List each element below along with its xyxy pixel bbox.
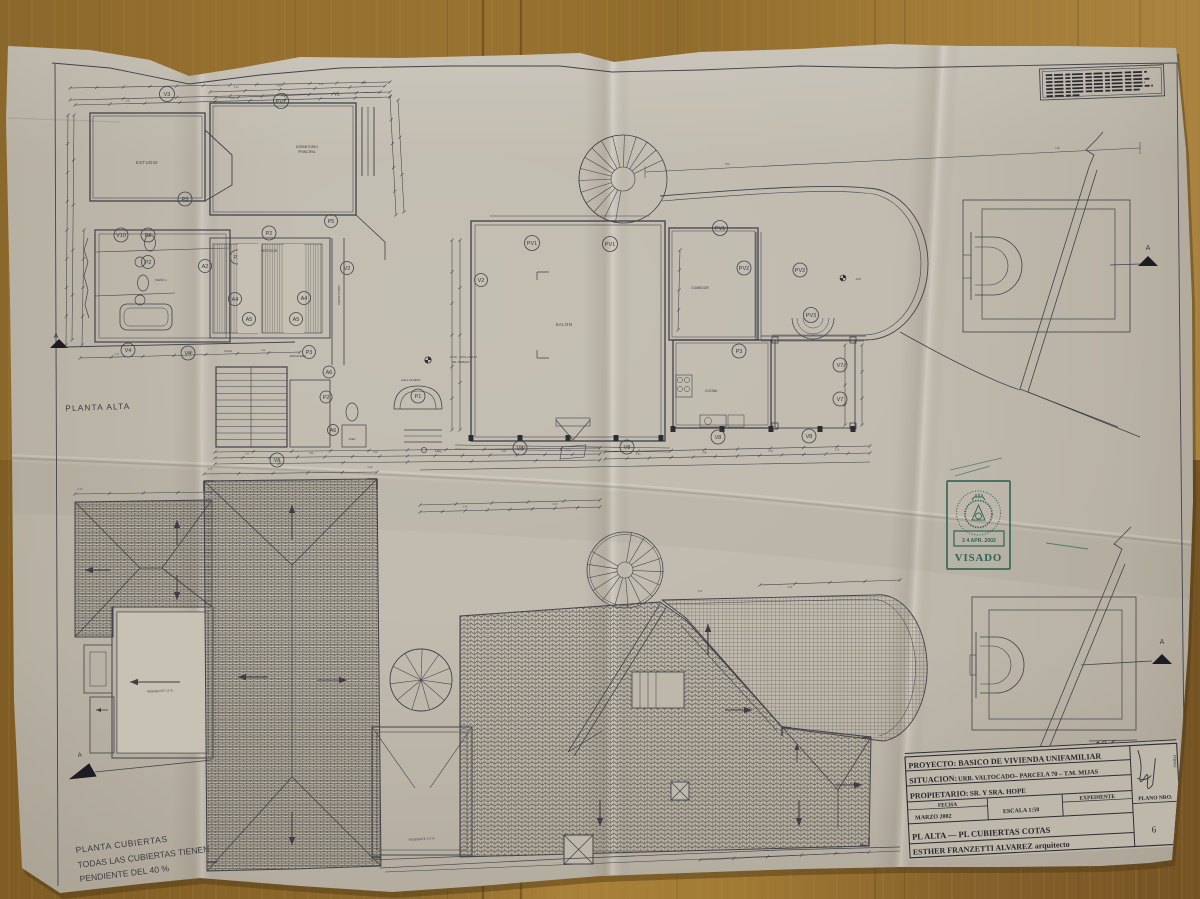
svg-text:A6: A6 xyxy=(326,370,333,376)
svg-text:BAÑO 1: BAÑO 1 xyxy=(155,277,166,282)
svg-text:A: A xyxy=(1160,639,1165,646)
svg-text:4.10: 4.10 xyxy=(188,351,193,354)
svg-text:A5: A5 xyxy=(293,317,300,323)
svg-text:V7: V7 xyxy=(837,363,844,369)
svg-text:2.92: 2.92 xyxy=(788,586,793,589)
svg-text:PV2: PV2 xyxy=(276,99,286,105)
svg-text:0.40: 0.40 xyxy=(78,488,83,491)
svg-text:PV3: PV3 xyxy=(806,313,816,319)
svg-text:±0.00 · COTA +378.00: ±0.00 · COTA +378.00 xyxy=(450,355,477,359)
svg-text:COMEDOR: COMEDOR xyxy=(691,286,709,290)
svg-text:FECHA: FECHA xyxy=(938,802,958,809)
svg-text:1.80: 1.80 xyxy=(335,94,340,97)
svg-text:PV1: PV1 xyxy=(715,226,725,232)
svg-text:0.72: 0.72 xyxy=(114,353,119,356)
svg-text:4.10: 4.10 xyxy=(230,97,235,100)
svg-text:P2: P2 xyxy=(145,260,152,266)
svg-text:FIRMA: FIRMA xyxy=(1172,755,1178,768)
svg-text:V2: V2 xyxy=(478,278,485,284)
svg-text:0.90: 0.90 xyxy=(373,451,378,454)
svg-text:1.80: 1.80 xyxy=(125,100,130,103)
svg-text:P2: P2 xyxy=(266,231,273,237)
svg-text:2.45: 2.45 xyxy=(463,506,468,509)
svg-text:A4: A4 xyxy=(301,296,308,302)
svg-text:COCINA: COCINA xyxy=(705,389,718,393)
svg-text:V3: V3 xyxy=(164,92,171,98)
svg-text:2.00: 2.00 xyxy=(309,452,314,455)
svg-text:V2: V2 xyxy=(344,266,351,272)
svg-text:VISADO: VISADO xyxy=(955,552,1002,564)
svg-text:2.90: 2.90 xyxy=(1055,147,1060,150)
svg-text:2.08: 2.08 xyxy=(702,452,707,455)
svg-text:3.41: 3.41 xyxy=(698,590,703,593)
svg-text:DEL TERRENO: DEL TERRENO xyxy=(452,361,470,364)
svg-text:3.05: 3.05 xyxy=(838,846,843,849)
svg-text:P2: P2 xyxy=(323,395,330,401)
svg-text:1.60: 1.60 xyxy=(768,450,773,453)
svg-text:0.42: 0.42 xyxy=(261,349,266,352)
svg-text:1.40: 1.40 xyxy=(245,453,250,456)
svg-text:V4: V4 xyxy=(125,348,132,354)
svg-text:V7: V7 xyxy=(837,397,844,403)
svg-text:0.90: 0.90 xyxy=(276,85,281,88)
svg-text:DORMITORIO: DORMITORIO xyxy=(296,145,318,149)
svg-text:4.10: 4.10 xyxy=(234,86,239,89)
svg-text:8.40: 8.40 xyxy=(553,503,558,506)
svg-text:HALL ACCESO: HALL ACCESO xyxy=(401,378,421,382)
svg-text:1.40: 1.40 xyxy=(437,451,442,454)
svg-text:P5: P5 xyxy=(328,219,335,225)
svg-text:SALON: SALON xyxy=(556,322,573,327)
svg-text:0.40: 0.40 xyxy=(368,466,373,469)
svg-text:ASEO: ASEO xyxy=(349,438,356,441)
svg-text:A4: A4 xyxy=(232,297,239,303)
svg-text:V8: V8 xyxy=(517,446,524,452)
svg-text:V8: V8 xyxy=(274,458,281,464)
svg-text:0.80: 0.80 xyxy=(501,450,506,453)
svg-text:0.93: 0.93 xyxy=(636,453,641,456)
svg-text:PV2: PV2 xyxy=(795,268,805,274)
svg-text:PV1: PV1 xyxy=(605,242,615,248)
svg-text:PV2: PV2 xyxy=(739,266,749,272)
svg-text:2 4 APR. 2002: 2 4 APR. 2002 xyxy=(962,538,996,544)
svg-text:ESTUDIO: ESTUDIO xyxy=(136,160,158,165)
svg-text:P1: P1 xyxy=(415,394,422,400)
svg-text:V8: V8 xyxy=(806,434,813,440)
svg-text:A: A xyxy=(54,333,59,340)
svg-text:A5: A5 xyxy=(246,317,253,323)
svg-text:2.00: 2.00 xyxy=(566,449,571,452)
svg-text:P2: P2 xyxy=(145,233,152,239)
svg-text:P3: P3 xyxy=(182,197,189,203)
svg-text:PRINCIPAL: PRINCIPAL xyxy=(298,150,316,154)
svg-text:P3: P3 xyxy=(736,349,743,355)
svg-text:A2: A2 xyxy=(202,264,209,270)
svg-text:A6: A6 xyxy=(330,428,337,434)
svg-text:P3: P3 xyxy=(306,350,313,356)
svg-text:2.45: 2.45 xyxy=(208,468,213,471)
svg-text:V8: V8 xyxy=(624,445,631,451)
svg-text:-0.10: -0.10 xyxy=(855,277,861,281)
svg-text:V8: V8 xyxy=(715,435,722,441)
svg-text:CIRCULACION: CIRCULACION xyxy=(337,285,341,304)
svg-text:1.10: 1.10 xyxy=(835,449,840,452)
svg-text:CAJA: CAJA xyxy=(224,349,232,353)
svg-text:8.60: 8.60 xyxy=(725,163,730,166)
svg-text:V10: V10 xyxy=(116,233,126,239)
svg-text:PV1: PV1 xyxy=(527,241,537,247)
svg-text:A: A xyxy=(1146,245,1151,252)
